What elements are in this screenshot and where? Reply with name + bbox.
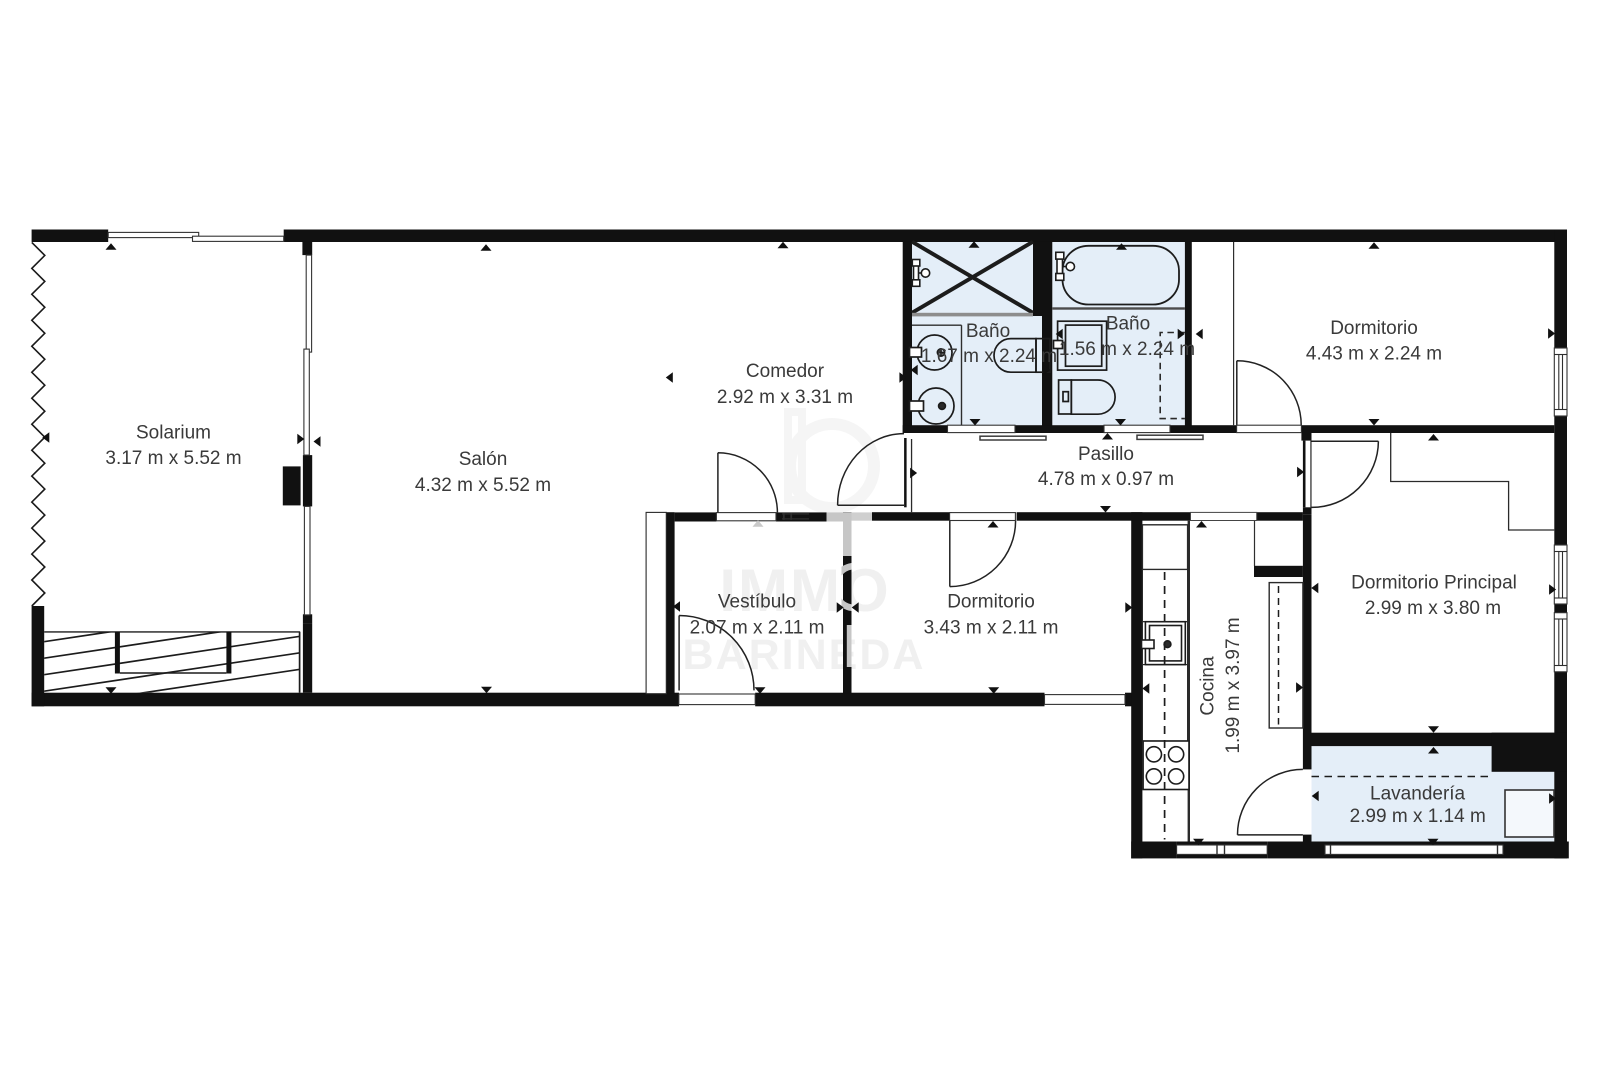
svg-text:Cocina: Cocina: [1198, 656, 1219, 716]
svg-text:Pasillo: Pasillo: [1078, 444, 1134, 465]
svg-text:1.99 m x 3.97 m: 1.99 m x 3.97 m: [1223, 617, 1244, 753]
svg-text:2.99 m x 3.80 m: 2.99 m x 3.80 m: [1365, 598, 1501, 619]
svg-text:2.92 m x 3.31 m: 2.92 m x 3.31 m: [717, 387, 853, 408]
svg-text:2.99 m x 1.14 m: 2.99 m x 1.14 m: [1350, 806, 1486, 827]
svg-text:Solarium: Solarium: [136, 423, 211, 444]
svg-text:3.17 m x 5.52 m: 3.17 m x 5.52 m: [105, 448, 241, 469]
svg-text:Comedor: Comedor: [746, 361, 825, 382]
svg-text:1.56 m x 2.24 m: 1.56 m x 2.24 m: [1059, 339, 1195, 360]
svg-text:Lavandería: Lavandería: [1370, 784, 1466, 805]
svg-text:IMMO: IMMO: [719, 557, 890, 624]
svg-text:3.43 m x 2.11 m: 3.43 m x 2.11 m: [924, 618, 1059, 639]
svg-text:Dormitorio Principal: Dormitorio Principal: [1351, 573, 1517, 594]
svg-text:4.32 m x 5.52 m: 4.32 m x 5.52 m: [415, 475, 551, 496]
svg-text:4.78 m x 0.97 m: 4.78 m x 0.97 m: [1038, 469, 1174, 490]
svg-text:1.67 m x 2.24 m: 1.67 m x 2.24 m: [921, 346, 1057, 367]
svg-text:Baño: Baño: [966, 321, 1010, 342]
svg-text:Vestíbulo: Vestíbulo: [718, 592, 796, 613]
svg-text:4.43 m x 2.24 m: 4.43 m x 2.24 m: [1306, 344, 1442, 365]
svg-text:Baño: Baño: [1106, 314, 1150, 335]
svg-text:Dormitorio: Dormitorio: [947, 592, 1035, 613]
svg-text:Salón: Salón: [459, 449, 508, 470]
svg-text:2.07 m x 2.11 m: 2.07 m x 2.11 m: [690, 618, 825, 639]
svg-text:Dormitorio: Dormitorio: [1330, 318, 1418, 339]
